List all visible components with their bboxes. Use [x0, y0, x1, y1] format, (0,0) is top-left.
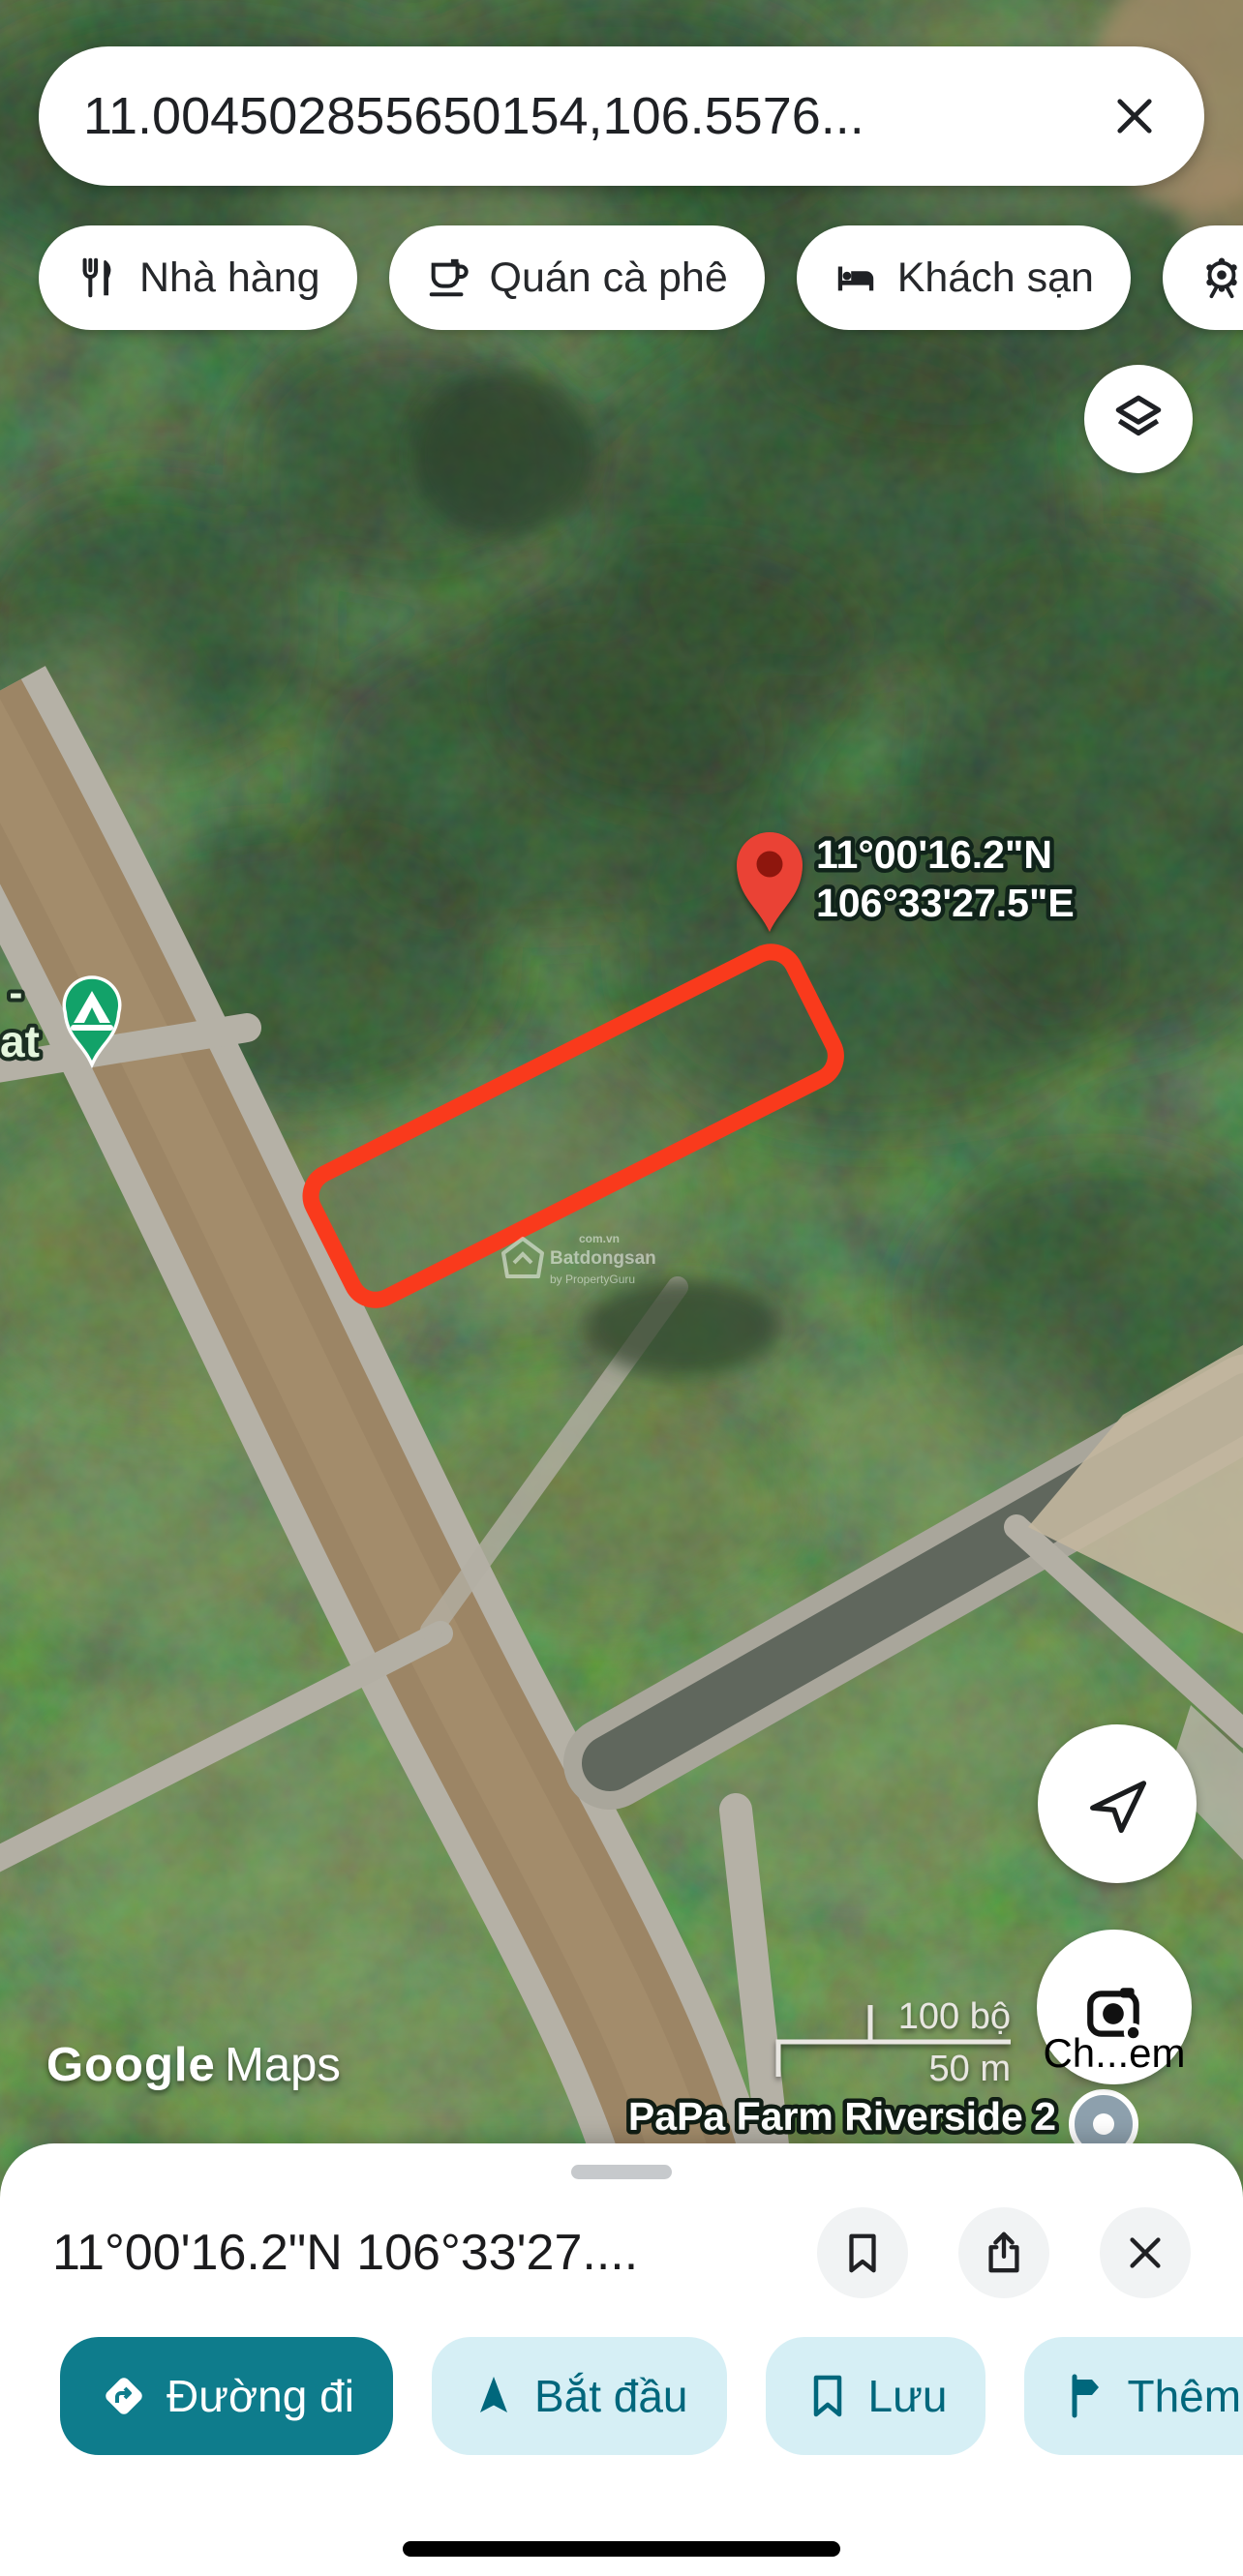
dark-ground-patch: [586, 1279, 779, 1376]
svg-text:l -: l -: [0, 970, 22, 1015]
bookmark-icon: [840, 2231, 885, 2275]
share-button[interactable]: [958, 2207, 1049, 2298]
hotel-icon: [834, 255, 878, 300]
google-watermark: Google Maps: [46, 2039, 341, 2091]
site-watermark-brand: Batdongsan: [550, 1248, 656, 1269]
action-label: Thêm: [1127, 2370, 1241, 2422]
sheet-title: 11°00'16.2"N 106°33'27....: [52, 2224, 767, 2282]
google-maps-app: com.vn Batdongsan by PropertyGuru l - at…: [0, 0, 1243, 2576]
sheet-drag-handle[interactable]: [571, 2165, 672, 2179]
camera-button-label: Ch...em: [1043, 2030, 1185, 2077]
place-bottom-sheet[interactable]: 11°00'16.2"N 106°33'27....: [0, 2143, 1243, 2576]
start-navigation-button[interactable]: Bắt đầu: [432, 2337, 727, 2455]
chip-label: Quán cà phê: [490, 255, 728, 302]
action-label: Lưu: [868, 2370, 948, 2422]
chip-hotels[interactable]: Khách sạn: [797, 225, 1131, 330]
google-watermark-brand: Google: [46, 2039, 216, 2091]
share-icon: [982, 2231, 1026, 2275]
chip-label: Khách sạn: [897, 255, 1094, 302]
chip-cafes[interactable]: Quán cà phê: [389, 225, 765, 330]
search-input[interactable]: 11.004502855650154,106.5576...: [83, 86, 1090, 146]
place-label[interactable]: PaPa Farm Riverside 2: [628, 2094, 1056, 2139]
chip-label: Nhà hàng: [139, 255, 320, 302]
action-label: Đường đi: [167, 2370, 354, 2422]
svg-text:11°00'16.2"N: 11°00'16.2"N: [816, 832, 1052, 877]
bookmark-button[interactable]: [817, 2207, 908, 2298]
site-watermark-sub: by PropertyGuru: [550, 1273, 635, 1286]
chip-attractions[interactable]: Địa: [1163, 225, 1243, 330]
my-location-button[interactable]: [1038, 1724, 1197, 1883]
flag-icon: [1063, 2373, 1109, 2419]
close-sheet-button[interactable]: [1100, 2207, 1191, 2298]
category-chips: Nhà hàng Quán cà phê Khách sạn: [0, 225, 1243, 330]
close-x-icon[interactable]: [1109, 91, 1160, 141]
more-button[interactable]: Thêm: [1024, 2337, 1243, 2455]
scale-metric: 50 m: [929, 2049, 1011, 2089]
svg-text:at: at: [0, 1016, 40, 1066]
restaurant-icon: [76, 255, 120, 300]
scale-imperial: 100 bộ: [898, 1996, 1011, 2037]
attractions-icon: [1199, 255, 1243, 300]
save-button[interactable]: Lưu: [766, 2337, 986, 2455]
map-layers-button[interactable]: [1084, 365, 1193, 473]
search-bar[interactable]: 11.004502855650154,106.5576...: [39, 46, 1204, 186]
bookmark-icon: [804, 2373, 851, 2419]
site-watermark-domain: com.vn: [579, 1232, 620, 1245]
chip-restaurants[interactable]: Nhà hàng: [39, 225, 357, 330]
cafe-icon: [426, 255, 470, 300]
directions-button[interactable]: Đường đi: [60, 2337, 393, 2455]
action-label: Bắt đầu: [534, 2370, 688, 2422]
close-icon: [1123, 2231, 1167, 2275]
directions-icon: [99, 2371, 149, 2421]
sheet-title-row: 11°00'16.2"N 106°33'27....: [0, 2200, 1243, 2306]
navigation-arrow-icon: [1080, 1767, 1154, 1841]
street-view-camera-button[interactable]: Ch...em: [1037, 1930, 1192, 2084]
navigation-icon: [470, 2373, 517, 2419]
dark-pond-patch: [411, 373, 595, 537]
sheet-action-row: Đường đi Bắt đầu Lưu Thêm: [60, 2337, 1243, 2455]
svg-text:106°33'27.5"E: 106°33'27.5"E: [816, 881, 1075, 925]
google-watermark-word: Maps: [225, 2039, 341, 2091]
layers-icon: [1110, 391, 1167, 447]
home-indicator[interactable]: [403, 2541, 840, 2557]
